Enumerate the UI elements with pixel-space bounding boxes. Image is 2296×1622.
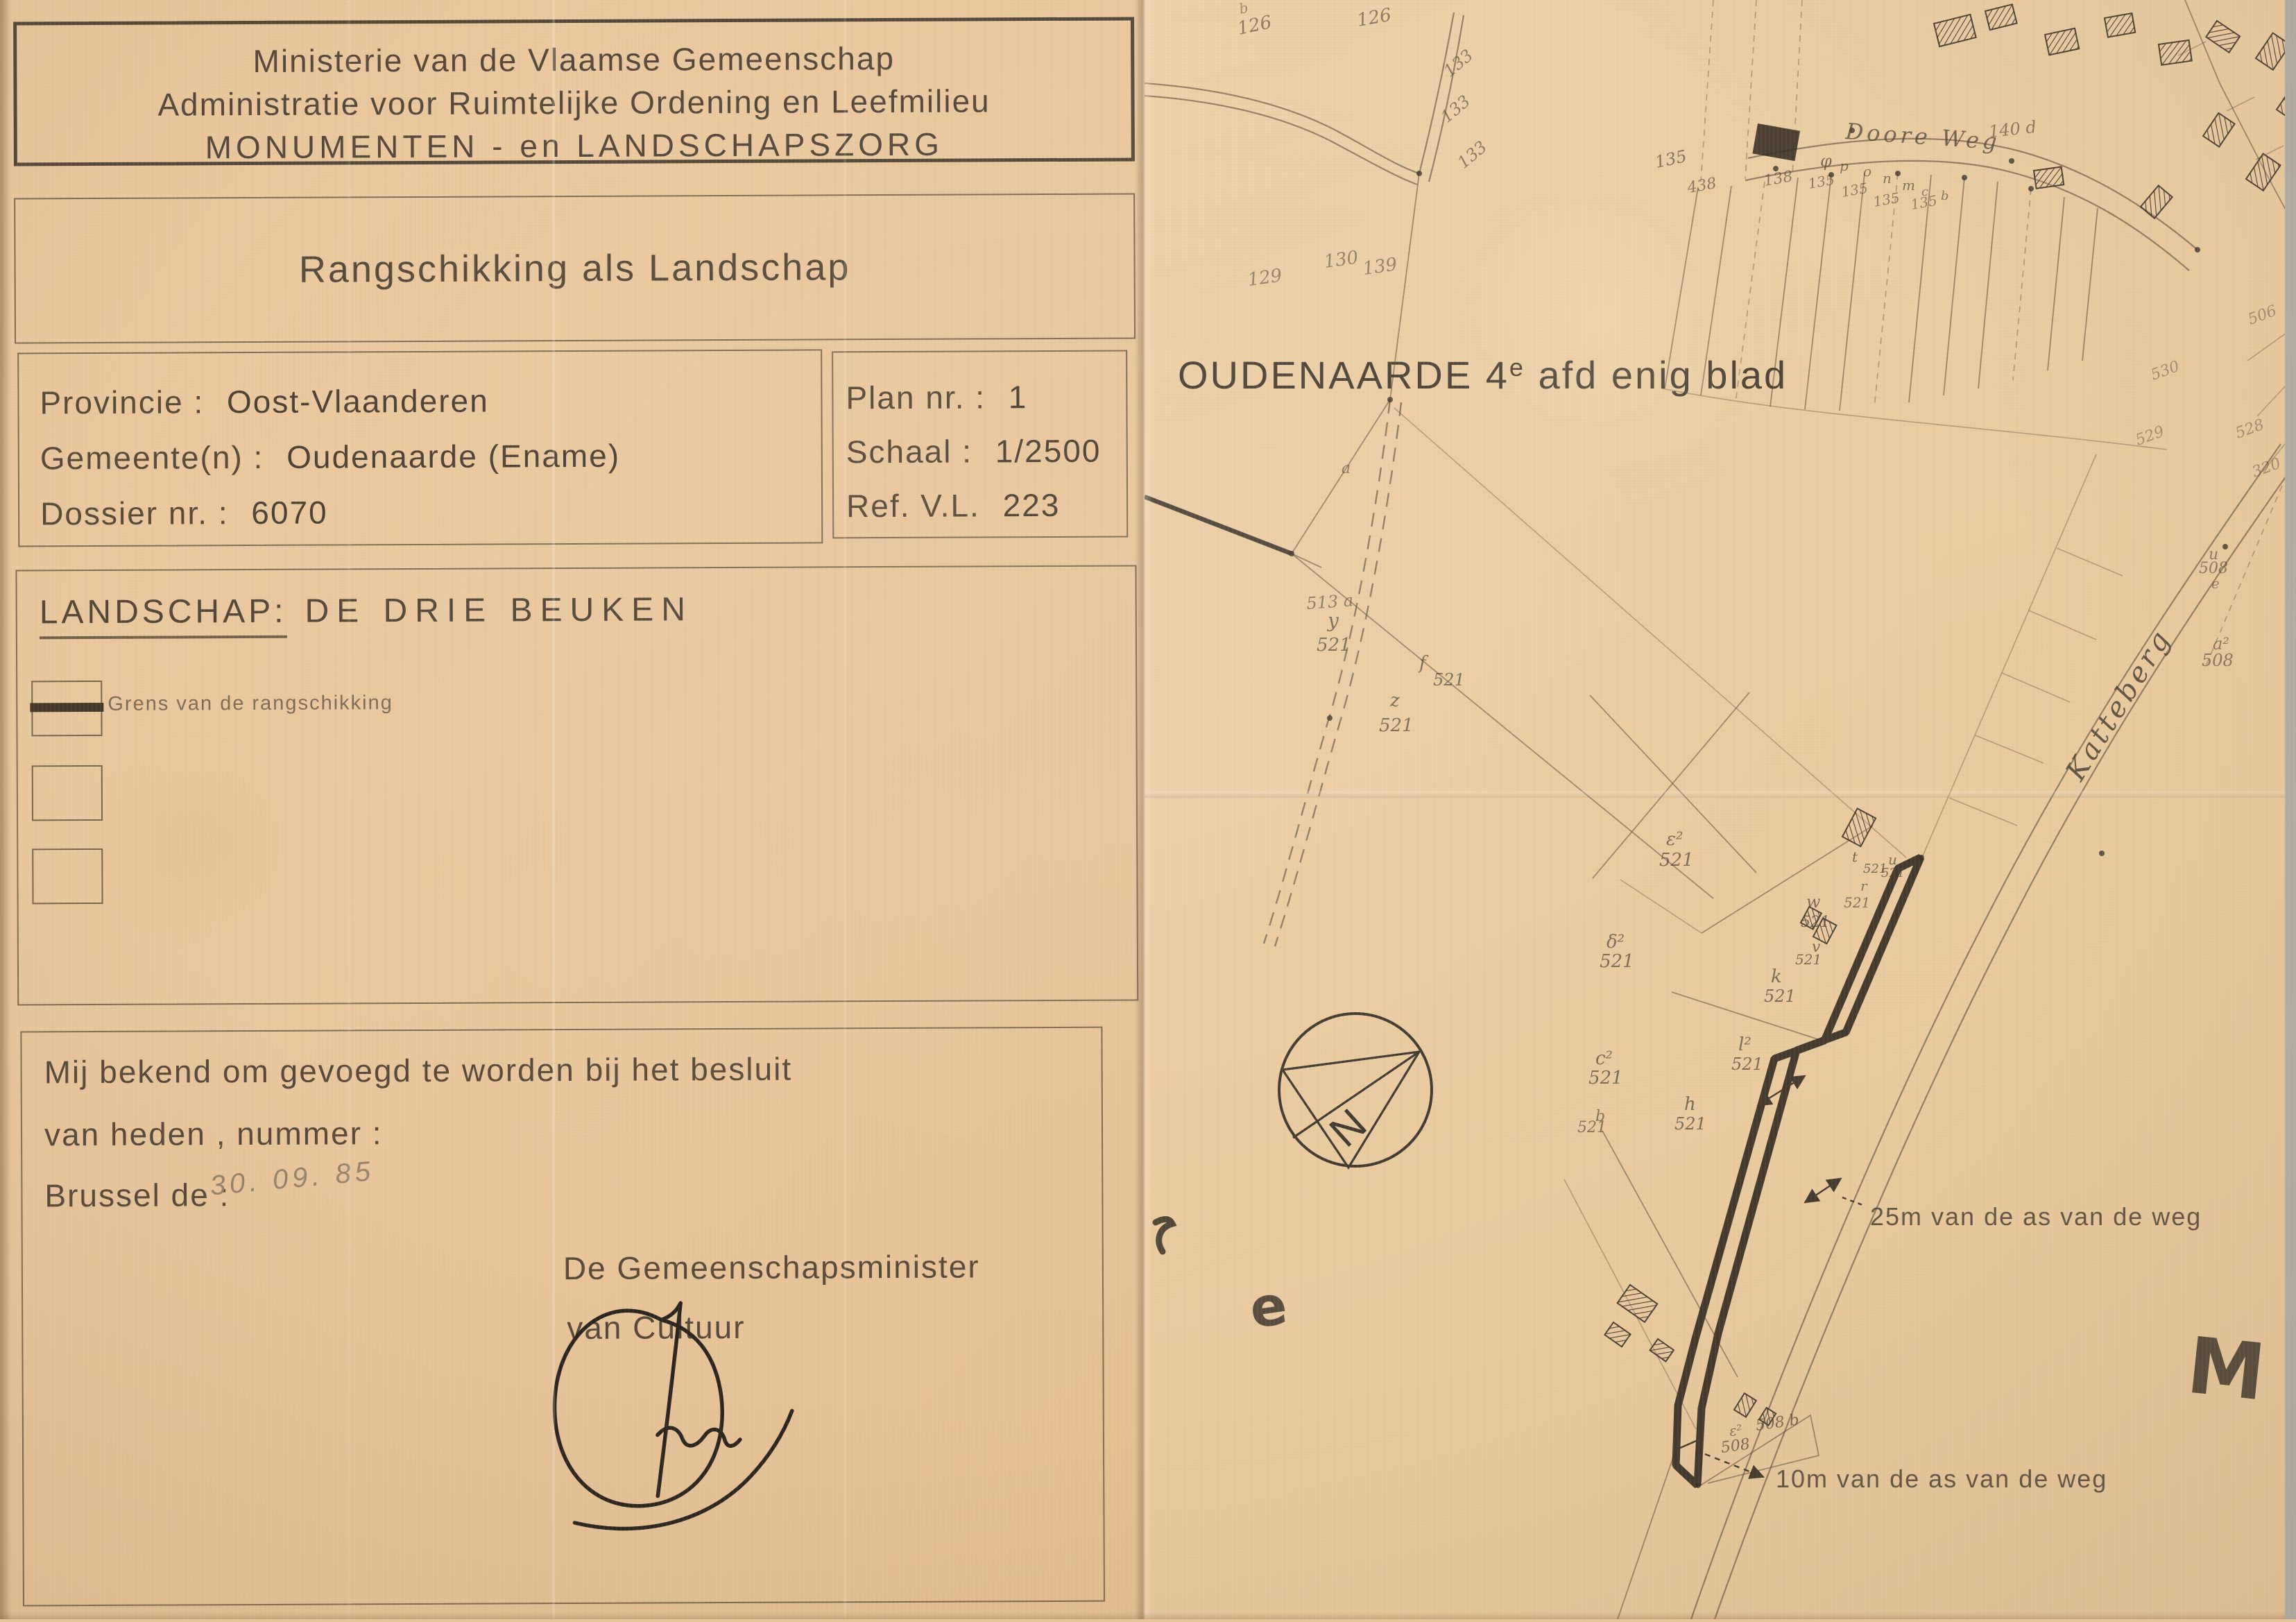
signature-squiggle <box>658 1428 740 1446</box>
parcel-label: 135 <box>1840 180 1869 200</box>
field-road <box>1145 12 1464 185</box>
parcel-label: 521 <box>1795 951 1822 968</box>
parcel-label: b <box>1941 189 1949 203</box>
ministry-line2: Administratie voor Ruimtelijke Ordening … <box>17 78 1131 126</box>
footpath-dashed <box>1264 400 1401 946</box>
north-letter: N <box>1321 1100 1376 1156</box>
ministry-line1: Ministerie van de Vlaamse Gemeenschap <box>17 35 1131 83</box>
minister-signature <box>538 1288 803 1539</box>
parcel-label: 508 <box>1720 1435 1751 1457</box>
parcel-label: 130 <box>1323 247 1360 273</box>
map-title-suffix: afd enig blad <box>1525 353 1788 397</box>
parcel-label: 135 <box>1653 146 1688 172</box>
classification-title-box: Rangschikking als Landschap <box>14 193 1136 343</box>
boundary-line-sample <box>30 703 103 712</box>
ministry-line3: MONUMENTEN - en LANDSCHAPSZORG <box>17 121 1131 169</box>
north-arrow: N <box>1279 1014 1432 1168</box>
handwritten-ink-mark: e <box>1246 1274 1291 1340</box>
parcel-label: 521 <box>1674 1114 1706 1134</box>
municipality-row: Gemeente(n) : Oudenaarde (Ename) <box>40 427 821 486</box>
parcel-label: 133 <box>1440 46 1477 81</box>
road-label: Katteberg <box>2059 623 2178 787</box>
scanned-document: { "form": { "header": { "line1": "Minist… <box>0 0 2296 1619</box>
parcel-label: c <box>1921 185 1928 199</box>
parcel-label: o <box>1863 163 1871 180</box>
landscape-name: DE DRIE BEUKEN <box>305 591 693 629</box>
parcel-label: 133 <box>1454 137 1491 173</box>
parcel-label: 126 <box>1355 5 1393 31</box>
map-title: OUDENAARDE 4e afd enig blad <box>1178 353 1788 397</box>
municipality-value: Oudenaarde (Ename) <box>286 438 620 475</box>
parcel-label: 138 <box>1763 168 1794 190</box>
landscape-label: LANDSCHAP: <box>40 593 287 640</box>
parcel-label: f <box>1418 653 1429 674</box>
plan-info-box: Plan nr. : 1 Schaal : 1/2500 Ref. V.L. 2… <box>832 350 1128 539</box>
scale-value: 1/2500 <box>995 433 1102 470</box>
map-title-superscript: e <box>1509 353 1525 382</box>
parcel-label: 521 <box>1433 670 1465 690</box>
parcel-label: p <box>1840 157 1849 174</box>
distance-annotation: 25m van de as van de weg <box>1870 1202 2202 1231</box>
legend-swatch-boundary <box>31 681 102 736</box>
parcel-label: w <box>1806 892 1821 912</box>
scale-label: Schaal : <box>846 433 973 470</box>
survey-dots <box>1289 128 2228 1488</box>
parcel-label: 320 <box>2250 455 2284 481</box>
ink-blot <box>1156 1219 1172 1252</box>
signature-underline <box>574 1411 793 1529</box>
parcel-label: k <box>1771 966 1782 987</box>
parcel-label: n <box>1883 170 1892 187</box>
parcel-label: 521 <box>1577 1119 1607 1136</box>
municipality-label: Gemeente(n) : <box>40 439 264 476</box>
minister-title-line1: De Gemeenschapsminister <box>563 1247 980 1287</box>
parcel-label: 521 <box>1844 894 1870 911</box>
decree-line1: Mij bekend om gevoegd te worden bij het … <box>44 1050 793 1091</box>
parcel-label: r <box>1860 878 1868 894</box>
ministry-header-box: Ministerie van de Vlaamse Gemeenschap Ad… <box>13 17 1135 166</box>
parcel-label: z <box>1389 690 1400 711</box>
distance-annotation: 10m van de as van de weg <box>1776 1465 2107 1493</box>
landscape-legend-box: LANDSCHAP:DE DRIE BEUKEN Grens van de ra… <box>15 565 1138 1005</box>
parcel-label: 521 <box>1600 951 1634 972</box>
signature-stem <box>657 1303 681 1496</box>
plan-number-value: 1 <box>1009 379 1028 415</box>
form-content: Ministerie van de Vlaamse Gemeenschap Ad… <box>0 0 1148 1622</box>
dossier-row: Dossier nr. : 6070 <box>40 482 821 541</box>
parcel-label: φ <box>1820 151 1832 171</box>
decree-box: Mij bekend om gevoegd te worden bij het … <box>20 1027 1105 1607</box>
handwritten-date: 30. 09. 85 <box>209 1156 376 1202</box>
parcel-label: e <box>2211 575 2220 592</box>
road-label: Doore Weg <box>1844 118 2001 155</box>
parcel-label: y <box>1326 609 1339 632</box>
parcel-label: 529 <box>2134 423 2167 450</box>
legend-swatch-empty-1 <box>32 765 103 821</box>
reference-label: Ref. V.L. <box>846 487 980 524</box>
parcel-label: 521 <box>1379 715 1414 736</box>
scanner-edge-right <box>2285 0 2296 1619</box>
parcel-label: 508 <box>2202 651 2234 670</box>
signature-loop <box>554 1311 723 1507</box>
parcel-label: 521 <box>1659 850 1694 871</box>
legend-swatch-empty-2 <box>32 848 103 904</box>
parcel-label: m <box>1902 177 1915 194</box>
parcel-label: c² <box>1595 1048 1613 1069</box>
plan-number-row: Plan nr. : 1 <box>846 370 1126 425</box>
plan-number-label: Plan nr. : <box>846 379 986 416</box>
reference-row: Ref. V.L. 223 <box>846 478 1126 533</box>
parcel-label: 528 <box>2234 416 2267 443</box>
cadastral-map: N OUDENAARDE 4e afd enig blad b126126129… <box>1145 0 2296 1619</box>
katteberg-road <box>1691 444 2296 1619</box>
classification-title: Rangschikking als Landschap <box>299 246 851 291</box>
parcel-label: l² <box>1738 1034 1751 1055</box>
province-value: Oost-Vlaanderen <box>227 383 489 420</box>
parcel-label: 521 <box>1881 866 1905 880</box>
reference-value: 223 <box>1003 487 1061 523</box>
province-row: Provincie : Oost-Vlaanderen <box>40 371 821 430</box>
parcel-label: t <box>1852 848 1858 865</box>
parcel-label: 521 <box>1317 635 1351 656</box>
parcel-label: 521 <box>1731 1055 1763 1074</box>
parcel-label: δ² <box>1607 932 1625 953</box>
parcel-label: 530 <box>2149 358 2182 384</box>
province-info-box: Provincie : Oost-Vlaanderen Gemeente(n) … <box>17 349 823 547</box>
parcel-label: 521 <box>1801 914 1830 931</box>
dossier-label: Dossier nr. : <box>40 495 229 531</box>
map-title-prefix: OUDENAARDE 4 <box>1178 353 1509 397</box>
parcel-label: a <box>1342 460 1351 477</box>
landscape-title: LANDSCHAP:DE DRIE BEUKEN <box>40 590 693 631</box>
legend-label-boundary: Grens van de rangschikking <box>108 692 393 716</box>
parcel-label: ε² <box>1666 829 1683 850</box>
parcel-label: 521 <box>1588 1068 1623 1089</box>
parcel-label: 521 <box>1764 987 1796 1006</box>
parcel-label: h <box>1684 1094 1696 1115</box>
form-page: Ministerie van de Vlaamse Gemeenschap Ad… <box>0 0 1145 1619</box>
parcel-label: 129 <box>1246 265 1283 291</box>
parcel-label: 135 <box>1872 189 1901 210</box>
brussels-date-label: Brussel de : <box>44 1176 230 1214</box>
parcel-label: 506 <box>2246 302 2279 329</box>
parcel-label: 135 <box>1807 171 1836 192</box>
parcel-label: b <box>1237 0 1250 17</box>
dossier-value: 6070 <box>251 495 328 531</box>
scale-row: Schaal : 1/2500 <box>846 424 1126 479</box>
parcel-label: 139 <box>1362 254 1398 280</box>
decree-line2: van heden , nummer : <box>44 1114 383 1153</box>
parcel-label: 438 <box>1686 175 1718 197</box>
province-label: Provincie : <box>40 384 204 420</box>
handwritten-ink-mark: M <box>2183 1321 2269 1419</box>
